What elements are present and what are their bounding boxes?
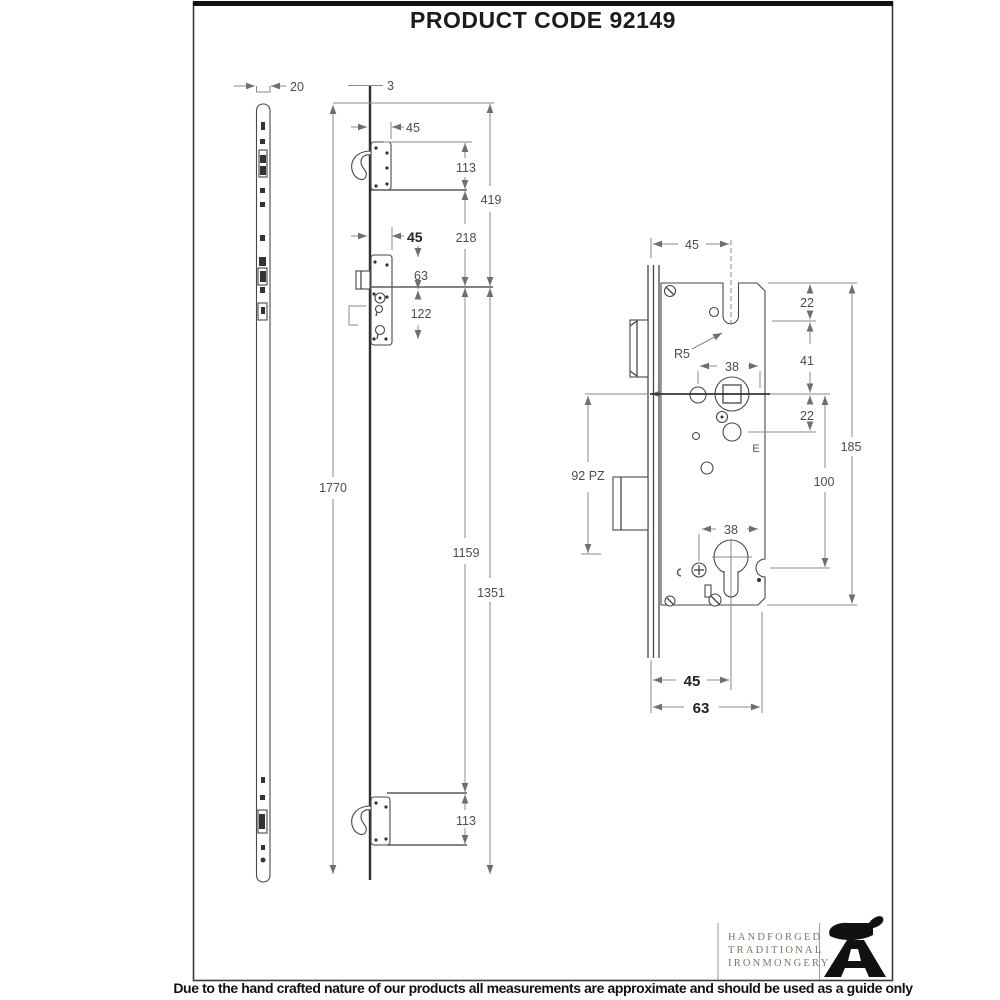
center-backset-label: 45 (407, 229, 423, 245)
logo-line-1: HANDFORGED (728, 932, 822, 943)
drawing-page: PRODUCT CODE 92149 20 3 (0, 0, 1000, 1000)
case-stamp-label: E (752, 443, 759, 455)
follower-spacing-label: 38 (725, 360, 739, 374)
logo-line-3: IRONMONGERY (728, 958, 830, 969)
hook-top-height-label: 113 (456, 161, 476, 175)
keep-width-label: 20 (290, 80, 304, 94)
case-top-offset-label: 63 (414, 269, 428, 283)
top-to-hole-label: 22 (800, 296, 814, 310)
case-depth-label: 63 (693, 700, 710, 717)
hook-to-center-label: 218 (456, 231, 477, 245)
center-to-end-label: 1351 (477, 586, 505, 600)
backset-bottom-label: 45 (684, 673, 701, 690)
logo-line-2: TRADITIONAL (728, 945, 823, 956)
total-length-label: 1770 (319, 481, 347, 495)
technical-drawing: PRODUCT CODE 92149 20 3 (0, 0, 1000, 1000)
hole-to-follower-label: 41 (800, 354, 814, 368)
follower-to-cylinder-label: 100 (814, 475, 835, 489)
cylinder-spacing-label: 38 (724, 523, 738, 537)
case-bottom-offset-label: 122 (411, 307, 432, 321)
hook-top-backset-label: 45 (406, 121, 420, 135)
drawing-frame (193, 3, 893, 981)
footer-disclaimer: Due to the hand crafted nature of our pr… (173, 980, 913, 996)
top-to-center-label: 419 (481, 193, 502, 207)
follower-to-hole-label: 22 (800, 409, 814, 423)
notch-radius-label: R5 (674, 347, 690, 361)
case-height-label: 185 (841, 440, 862, 454)
strip-thickness-label: 3 (387, 79, 394, 93)
hook-bottom-height-label: 113 (456, 814, 476, 828)
center-to-hook-bottom-label: 1159 (453, 546, 480, 560)
pz-size-label: 92 PZ (571, 469, 605, 483)
page-title: PRODUCT CODE 92149 (410, 7, 676, 33)
case-backset-label: 45 (685, 238, 699, 252)
